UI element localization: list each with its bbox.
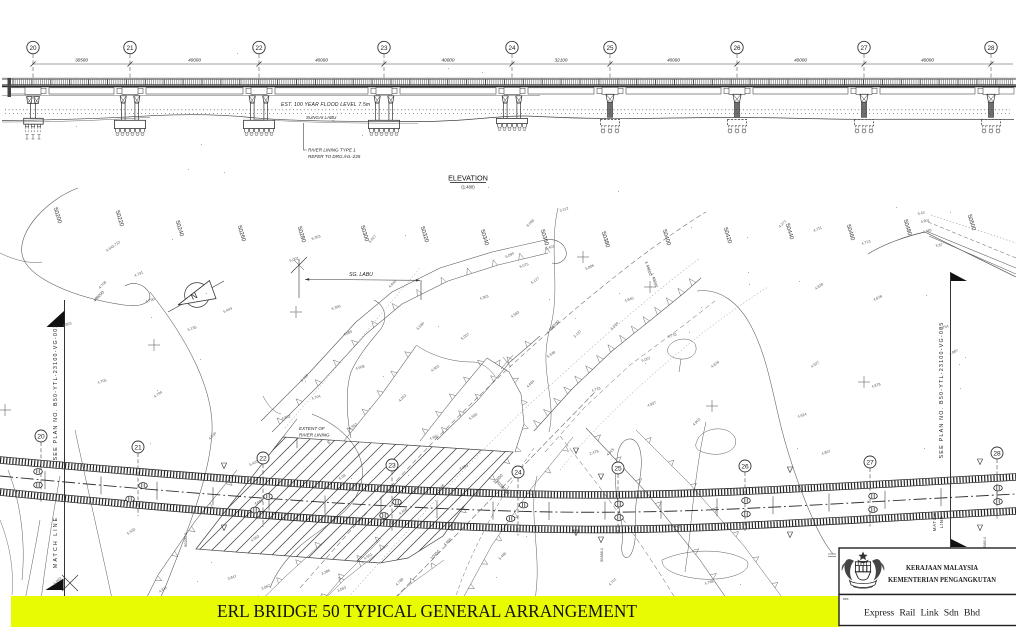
svg-text:40000: 40000 [794, 58, 807, 63]
svg-text:40000: 40000 [442, 58, 455, 63]
svg-text:20: 20 [29, 45, 37, 52]
svg-text:27: 27 [860, 45, 868, 52]
svg-text:SG. LABU: SG. LABU [349, 272, 373, 278]
svg-text:(1:400): (1:400) [461, 185, 475, 190]
svg-text:40000: 40000 [315, 58, 328, 63]
svg-text:30500: 30500 [75, 58, 88, 63]
svg-text:BRF.: BRF. [843, 597, 849, 601]
svg-text:ELEVATION: ELEVATION [448, 174, 488, 183]
svg-text:SEE PLAN NO. B50-YTL-23100-VG-: SEE PLAN NO. B50-YTL-23100-VG-005 [939, 322, 945, 459]
svg-text:20: 20 [37, 433, 45, 440]
svg-text:KEMENTERIAN PENGANGKUTAN: KEMENTERIAN PENGANGKUTAN [888, 575, 996, 584]
svg-text:RIVER LINING: RIVER LINING [299, 433, 330, 438]
svg-text:26: 26 [741, 463, 749, 470]
svg-text:22: 22 [259, 455, 267, 462]
svg-text:25: 25 [614, 465, 622, 472]
svg-text:28: 28 [993, 450, 1001, 457]
svg-text:23: 23 [388, 462, 396, 469]
svg-text:23: 23 [380, 45, 388, 52]
svg-text:EXTENT OF: EXTENT OF [299, 426, 326, 431]
svg-text:EST. 100 YEAR FLOOD LEVEL 7.5m: EST. 100 YEAR FLOOD LEVEL 7.5m [281, 102, 370, 108]
svg-text:MATCH LINE: MATCH LINE [53, 516, 59, 568]
svg-text:25: 25 [606, 45, 614, 52]
svg-text:21: 21 [126, 45, 134, 52]
svg-text:Express Rail Link Sdn Bhd: Express Rail Link Sdn Bhd [864, 608, 980, 619]
svg-text:21: 21 [134, 444, 142, 451]
svg-text:50388.4: 50388.4 [600, 548, 604, 562]
svg-text:MATCH: MATCH [932, 513, 937, 531]
svg-text:SEE PLAN NO. B50-YTL-23100-VG-: SEE PLAN NO. B50-YTL-23100-VG-003 [53, 324, 59, 461]
svg-text:REFER TO DRG./HL-235: REFER TO DRG./HL-235 [308, 154, 361, 159]
svg-text:50260.3: 50260.3 [184, 533, 188, 547]
svg-text:24: 24 [514, 469, 522, 476]
svg-text:27: 27 [866, 459, 874, 466]
svg-text:32100: 32100 [555, 58, 568, 63]
svg-text:LINE: LINE [939, 516, 944, 528]
svg-text:28: 28 [987, 45, 995, 52]
svg-text:22: 22 [255, 45, 263, 52]
svg-text:40000: 40000 [188, 58, 201, 63]
svg-text:26: 26 [733, 45, 741, 52]
svg-text:40000: 40000 [667, 58, 680, 63]
svg-text:ERL BRIDGE 50 TYPICAL GENERAL: ERL BRIDGE 50 TYPICAL GENERAL ARRANGEMEN… [217, 601, 637, 621]
svg-text:24: 24 [508, 45, 516, 52]
svg-text:40000: 40000 [921, 58, 934, 63]
svg-text:SUNGAI LABU: SUNGAI LABU [306, 115, 337, 120]
svg-text:KERAJAAN MALAYSIA: KERAJAAN MALAYSIA [906, 563, 978, 572]
svg-text:RIVER LINING TYPE 1: RIVER LINING TYPE 1 [308, 148, 356, 153]
